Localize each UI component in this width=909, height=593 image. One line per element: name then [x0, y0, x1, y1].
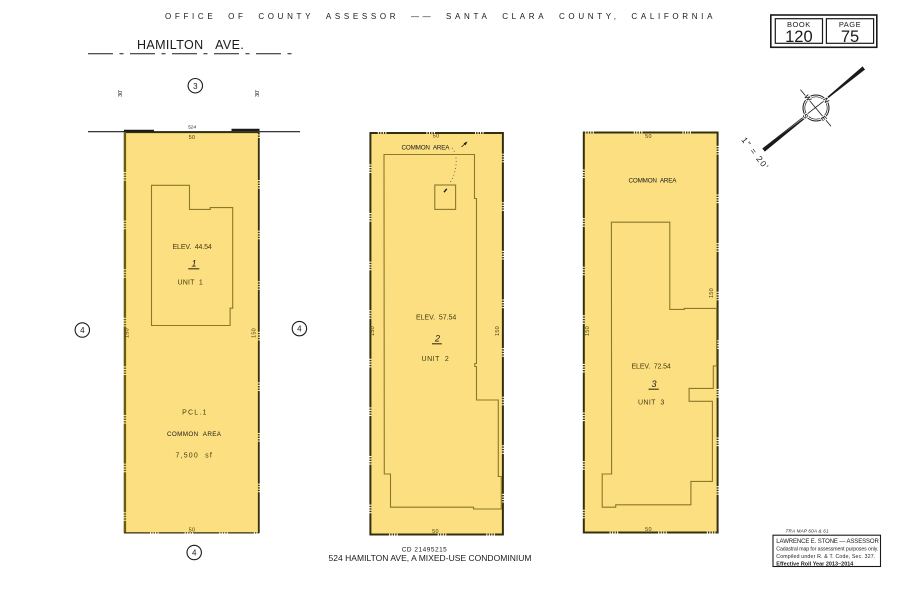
- svg-text:120: 120: [785, 28, 813, 46]
- svg-text:Cadastral map for assessment p: Cadastral map for assessment purposes on…: [776, 547, 878, 553]
- svg-text:COMMON AREA: COMMON AREA: [402, 144, 451, 151]
- svg-text:ELEV. 44.54: ELEV. 44.54: [173, 244, 213, 251]
- svg-text:PCL.1: PCL.1: [182, 410, 207, 417]
- svg-text:524 HAMILTON AVE, A MIXED-USE: 524 HAMILTON AVE, A MIXED-USE CONDOMINIU…: [329, 553, 533, 563]
- svg-text:UNIT 3: UNIT 3: [638, 400, 665, 407]
- svg-text:HAMILTON AVE.: HAMILTON AVE.: [137, 38, 245, 52]
- svg-text:Effective Roll Year 2013–2014: Effective Roll Year 2013–2014: [776, 561, 853, 567]
- svg-text:524: 524: [188, 125, 196, 131]
- svg-text:150: 150: [709, 288, 715, 298]
- svg-text:150: 150: [125, 328, 131, 338]
- svg-text:7,500 sf: 7,500 sf: [176, 453, 213, 460]
- svg-text:150: 150: [495, 326, 501, 336]
- svg-text:ELEV. 57.54: ELEV. 57.54: [416, 315, 457, 322]
- svg-text:50: 50: [433, 134, 440, 140]
- svg-text:Compiled under R. & T. Code, S: Compiled under R. & T. Code, Sec. 327.: [776, 554, 875, 560]
- svg-text:4: 4: [297, 325, 302, 334]
- svg-text:1: 1: [191, 259, 196, 269]
- svg-text:UNIT 1: UNIT 1: [178, 280, 204, 287]
- svg-text:150: 150: [585, 326, 591, 336]
- svg-text:50: 50: [645, 527, 652, 533]
- svg-text:TRA MAP 60A & 61: TRA MAP 60A & 61: [786, 528, 829, 533]
- svg-text:50: 50: [189, 528, 196, 534]
- svg-text:3: 3: [193, 82, 198, 91]
- svg-text:50: 50: [645, 134, 652, 140]
- svg-text:30': 30': [255, 90, 261, 97]
- svg-text:4: 4: [80, 326, 85, 335]
- svg-text:50: 50: [189, 135, 196, 141]
- svg-text:ELEV. 72.54: ELEV. 72.54: [632, 363, 672, 370]
- svg-text:OFFICE OF COUNTY ASSESSOR: OFFICE OF COUNTY ASSESSOR —— SANTA CLARA…: [165, 12, 717, 21]
- svg-text:150: 150: [251, 328, 257, 338]
- svg-text:4: 4: [192, 549, 197, 558]
- svg-text:30': 30': [118, 90, 124, 97]
- svg-text:2: 2: [434, 334, 440, 344]
- svg-text:75: 75: [841, 28, 859, 46]
- svg-text:UNIT 2: UNIT 2: [422, 356, 450, 363]
- svg-text:150: 150: [370, 326, 376, 336]
- svg-text:50: 50: [432, 529, 439, 535]
- svg-text:COMMON AREA: COMMON AREA: [629, 177, 678, 184]
- svg-text:COMMON AREA: COMMON AREA: [167, 431, 222, 438]
- svg-text:3: 3: [651, 379, 656, 389]
- svg-text:LAWRENCE E. STONE — ASSESSOR: LAWRENCE E. STONE — ASSESSOR: [776, 539, 879, 545]
